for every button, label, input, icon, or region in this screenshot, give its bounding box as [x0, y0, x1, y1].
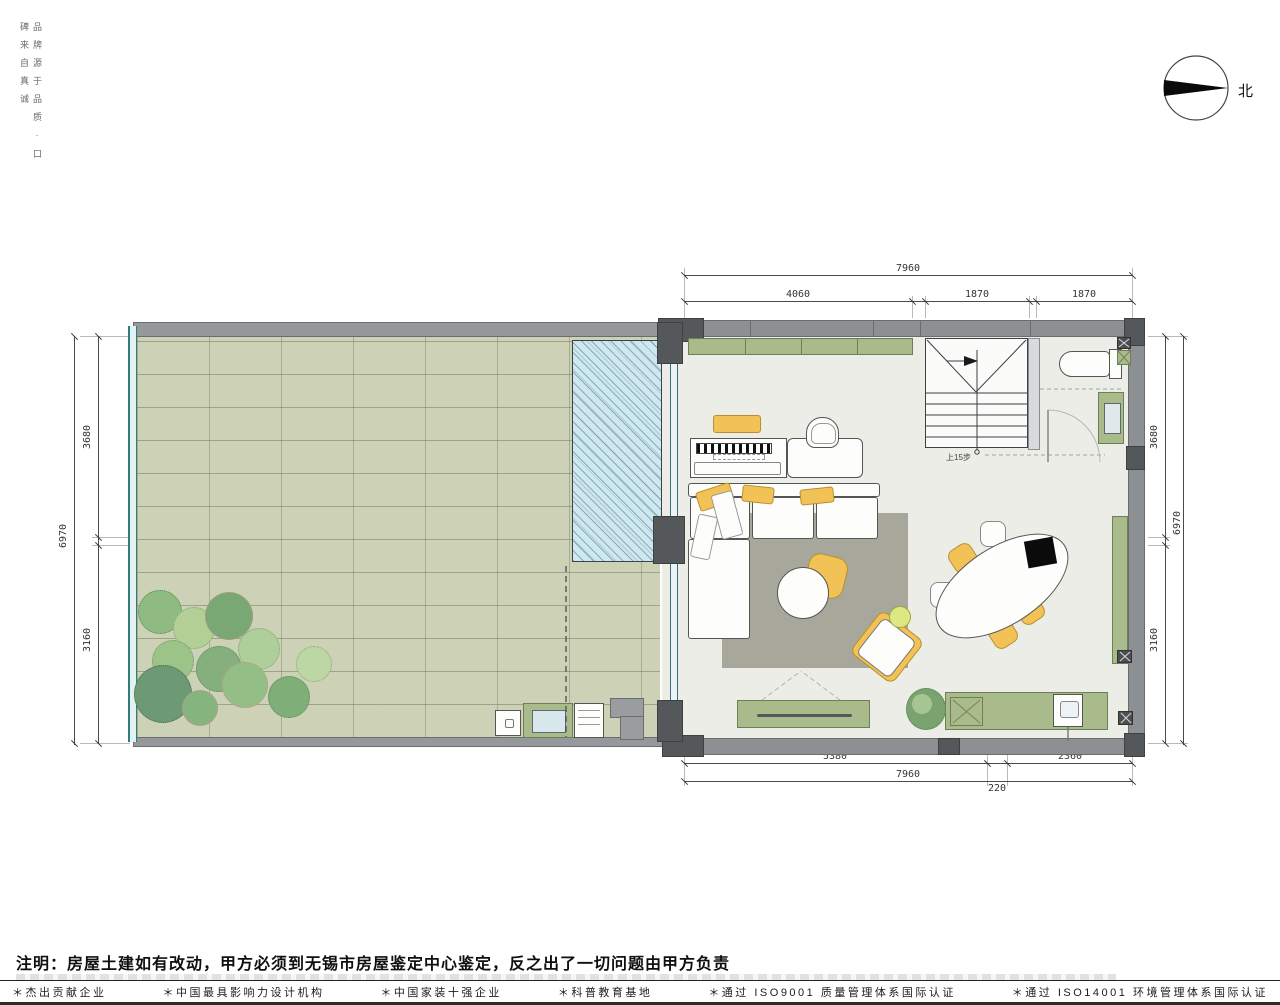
- footer-item: ＊中国家装十强企业: [380, 984, 502, 1000]
- laundry-sink: [1053, 694, 1083, 727]
- floor-drain: [1117, 337, 1131, 349]
- footer-item: ＊通过 ISO14001 环境管理体系国际认证: [1012, 984, 1268, 1000]
- dim-top-seg2: 1870: [927, 289, 1027, 300]
- top-cabinet: [688, 338, 913, 355]
- north-compass-icon: [1162, 54, 1230, 122]
- dim-bottom-overall: 7960: [858, 769, 958, 780]
- bathroom-vanity: [1098, 392, 1124, 444]
- tree: [268, 676, 310, 718]
- outdoor-fixture: [495, 710, 521, 736]
- footer-item: ＊通过 ISO9001 质量管理体系国际认证: [708, 984, 956, 1000]
- east-cabinet: [1112, 516, 1128, 664]
- tree: [222, 662, 268, 708]
- crate-box: [950, 697, 983, 726]
- tv-screen: [757, 714, 852, 717]
- bathroom-shelf: [1117, 350, 1131, 365]
- footer-item: ＊科普教育基地: [558, 984, 653, 1000]
- footer-item: ＊杰出贡献企业: [12, 984, 107, 1000]
- entry-step: [610, 698, 644, 718]
- terrace-glass-railing: [128, 326, 137, 742]
- side-table: [889, 606, 911, 628]
- entry-step: [620, 716, 644, 740]
- south-wall: [662, 738, 1145, 755]
- dim-left-seg1: 3680: [82, 407, 94, 467]
- piano-bench: [713, 415, 761, 433]
- wall-drain: [1117, 650, 1132, 663]
- dim-left-seg2: 3160: [82, 610, 94, 670]
- staircase: [925, 338, 1028, 448]
- footer-item: ＊中国最具影响力设计机构: [162, 984, 324, 1000]
- east-wall: [1128, 320, 1145, 755]
- dim-right-overall: 6970: [1172, 493, 1184, 553]
- dim-top-seg1: 4060: [748, 289, 848, 300]
- brand-slogan: 品牌源于品质·口碑来自真诚: [18, 22, 44, 172]
- terrace-south-wall: [133, 737, 673, 747]
- dim-right-seg1: 3680: [1149, 407, 1161, 467]
- sofa-pillow: [741, 484, 775, 504]
- dim-bottom-seg2: 220: [947, 783, 1047, 794]
- sliding-glass-door: [670, 364, 678, 516]
- dim-left-overall: 6970: [58, 506, 70, 566]
- terrace-north-wall: [133, 322, 672, 337]
- dim-top-seg3: 1870: [1034, 289, 1134, 300]
- bathroom-partition-wall: [1028, 338, 1040, 450]
- dim-right-seg2: 3160: [1149, 610, 1161, 670]
- pool: [572, 340, 662, 562]
- west-column: [653, 516, 685, 564]
- blueprint-canvas: 品牌源于品质·口碑来自真诚 北 7960 4060 1870 1870: [0, 0, 1280, 1005]
- tree: [296, 646, 332, 682]
- table-tray: [1024, 537, 1057, 569]
- credentials-footer: ＊杰出贡献企业 ＊中国最具影响力设计机构 ＊中国家装十强企业 ＊科普教育基地 ＊…: [0, 980, 1280, 1005]
- indoor-plant-highlight: [912, 694, 932, 714]
- north-wall: [658, 320, 1145, 337]
- outdoor-sink-cabinet: [523, 703, 573, 738]
- wall-drain: [1118, 711, 1133, 725]
- toilet-bowl: [1059, 351, 1110, 377]
- coffee-table: [777, 567, 829, 619]
- tree: [182, 690, 218, 726]
- west-column: [657, 700, 683, 742]
- dim-top-overall: 7960: [858, 263, 958, 274]
- outdoor-counter: [574, 703, 604, 738]
- desk-chair: [806, 417, 839, 448]
- sofa-seat: [816, 497, 878, 539]
- stair-direction-label: 上15步: [946, 452, 971, 463]
- sliding-glass-door: [670, 564, 678, 700]
- disclaimer-note: 注明：房屋土建如有改动，甲方必须到无锡市房屋鉴定中心鉴定，反之出了一切问题由甲方…: [16, 950, 730, 974]
- west-column: [657, 322, 683, 364]
- piano: [690, 438, 787, 478]
- north-label: 北: [1238, 80, 1253, 101]
